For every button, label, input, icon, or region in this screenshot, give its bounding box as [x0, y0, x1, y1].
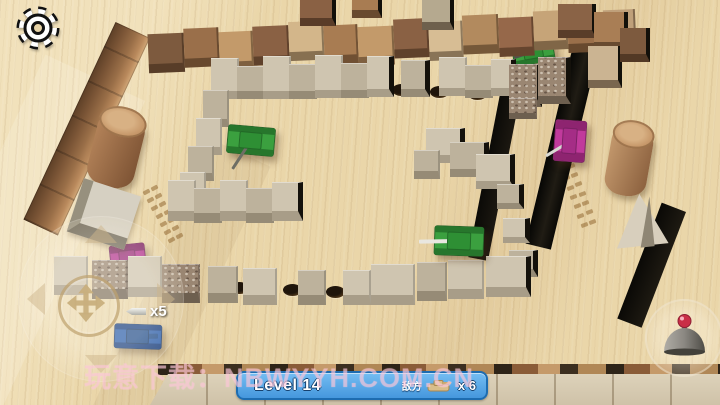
game-screen: x5 Level 14 敌方 x 6 玩意下载：NBWYYH.COM.CN	[0, 0, 720, 405]
enemy-count: x 6	[458, 378, 476, 393]
joystick-left-arrow-icon	[27, 283, 45, 315]
mine-icon	[658, 312, 710, 364]
tank-turret	[446, 232, 471, 251]
enemy-tank-green-3	[433, 225, 484, 257]
enemy-tank-purple-1	[553, 119, 588, 163]
fire-button[interactable]	[645, 299, 720, 377]
joystick[interactable]	[18, 216, 184, 382]
shell-icon	[126, 308, 146, 315]
tank-turret	[561, 128, 578, 155]
ammo-count: x5	[150, 303, 167, 320]
move-icon	[66, 283, 106, 323]
enemy-tank-green-1	[226, 124, 276, 157]
tank-turret	[238, 131, 262, 150]
enemy-tank-icon	[427, 379, 453, 392]
enemy-label: 敌方	[402, 378, 422, 393]
enemy-counter: 敌方 x 6	[402, 378, 476, 393]
gear-icon	[14, 4, 62, 52]
level-bar: Level 14 敌方 x 6	[236, 371, 488, 400]
level-label: Level 14	[254, 377, 321, 395]
joystick-up-arrow-icon	[85, 225, 117, 243]
joystick-down-arrow-icon	[85, 355, 117, 373]
ammo-indicator: x5	[126, 303, 167, 320]
settings-button[interactable]	[14, 4, 62, 52]
